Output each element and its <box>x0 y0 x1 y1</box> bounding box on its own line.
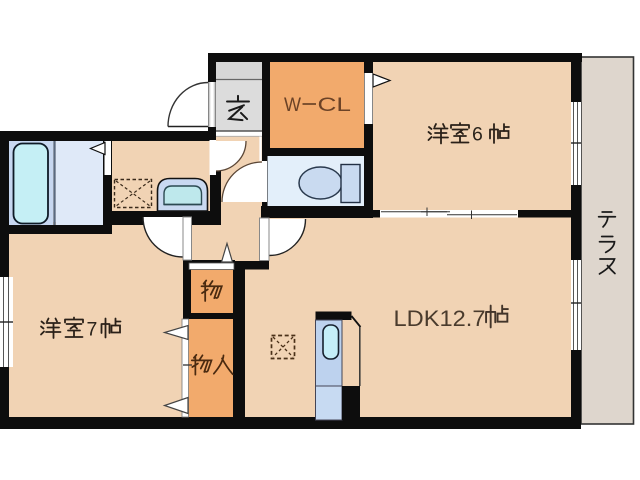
svg-text:6: 6 <box>472 124 483 146</box>
svg-text:W: W <box>284 94 302 116</box>
svg-text:LDK12.7: LDK12.7 <box>394 306 486 331</box>
svg-text:CL: CL <box>318 94 352 116</box>
svg-text:7: 7 <box>87 319 98 341</box>
